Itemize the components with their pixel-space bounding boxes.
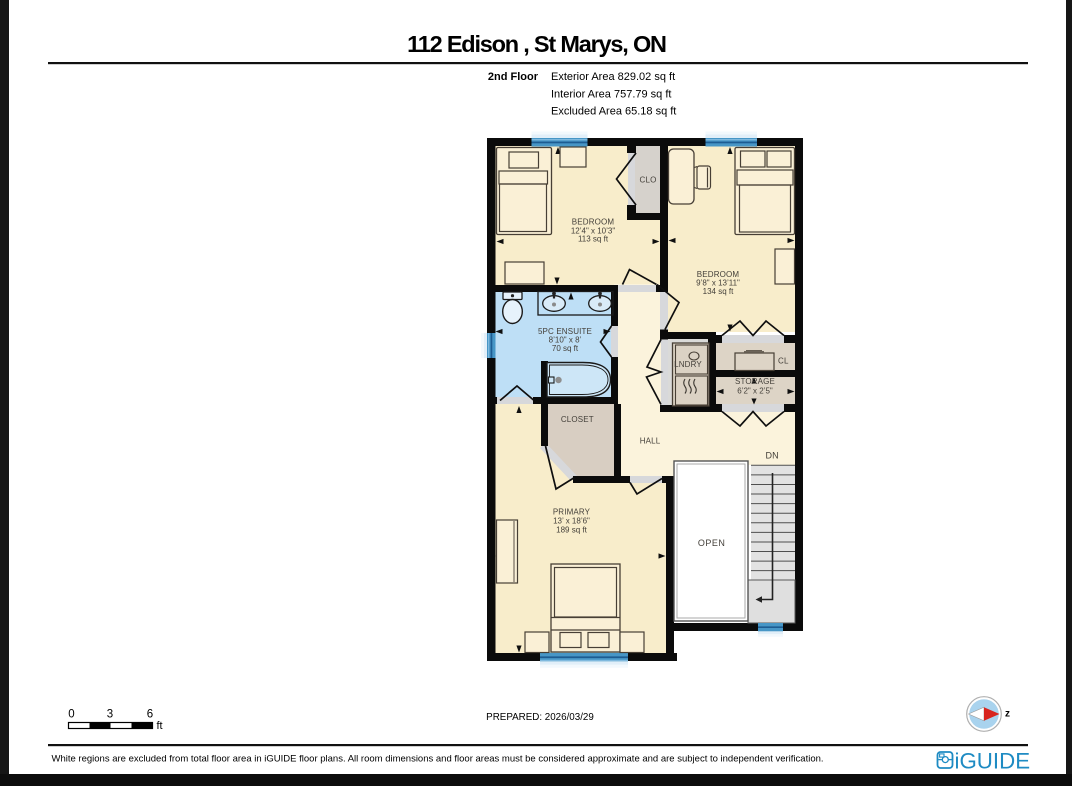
svg-text:Interior Area 757.79 sq ft: Interior Area 757.79 sq ft <box>551 88 671 100</box>
svg-text:0: 0 <box>68 709 74 721</box>
svg-text:CLOSET: CLOSET <box>561 415 594 424</box>
svg-text:DN: DN <box>766 451 779 461</box>
svg-text:PRIMARY: PRIMARY <box>553 508 591 517</box>
svg-text:CLO: CLO <box>640 176 657 185</box>
svg-text:CL: CL <box>778 357 789 366</box>
svg-text:113 sq ft: 113 sq ft <box>578 235 609 244</box>
svg-text:iGUIDE: iGUIDE <box>955 749 1031 774</box>
svg-text:Excluded Area 65.18 sq ft: Excluded Area 65.18 sq ft <box>551 106 676 118</box>
svg-text:BEDROOM: BEDROOM <box>572 218 615 227</box>
svg-text:70 sq ft: 70 sq ft <box>552 344 579 353</box>
svg-text:OPEN: OPEN <box>698 538 726 548</box>
svg-text:2nd Floor: 2nd Floor <box>488 71 539 83</box>
svg-text:Exterior Area 829.02 sq ft: Exterior Area 829.02 sq ft <box>551 71 675 83</box>
svg-text:LNDRY: LNDRY <box>674 360 702 369</box>
svg-text:z: z <box>1005 708 1010 719</box>
svg-text:White regions are excluded fro: White regions are excluded from total fl… <box>52 754 824 765</box>
svg-text:HALL: HALL <box>640 437 661 446</box>
svg-text:ft: ft <box>157 720 163 732</box>
svg-text:6’2" x 2’5": 6’2" x 2’5" <box>737 387 773 396</box>
svg-text:112 Edison , St Marys, ON: 112 Edison , St Marys, ON <box>407 31 666 57</box>
svg-text:189 sq ft: 189 sq ft <box>556 525 587 534</box>
svg-text:3: 3 <box>107 709 113 721</box>
svg-text:13’ x 18’6": 13’ x 18’6" <box>553 517 590 526</box>
svg-text:134 sq ft: 134 sq ft <box>703 287 734 296</box>
svg-text:STORAGE: STORAGE <box>735 377 775 386</box>
svg-text:6: 6 <box>147 709 153 721</box>
svg-text:PREPARED: 2026/03/29: PREPARED: 2026/03/29 <box>486 712 594 723</box>
